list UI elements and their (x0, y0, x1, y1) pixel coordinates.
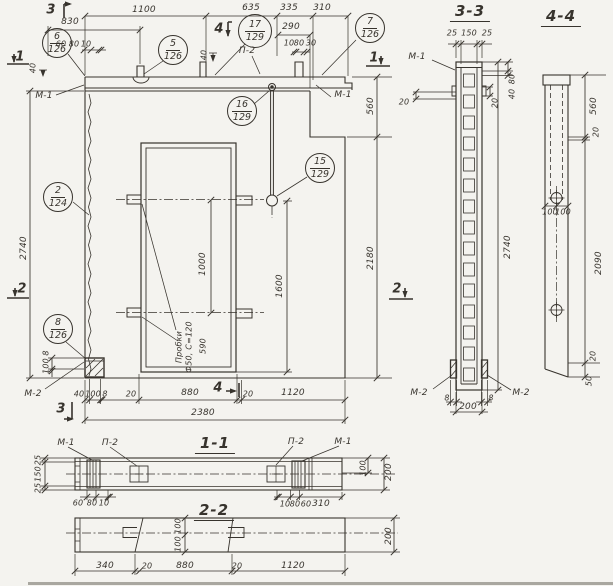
dim-2180-right: 2180 (366, 246, 376, 270)
section-1-1-title: 1-1 (195, 434, 235, 454)
s11-dim-60r: 60 (301, 500, 312, 509)
dim-20a-bottom: 20 (126, 390, 137, 399)
callout-sheet: 129 (309, 169, 331, 180)
rough-edge (88, 94, 91, 376)
dim-100-bottom: 100 (85, 390, 101, 399)
s44-dim-20b: 20 (589, 351, 598, 362)
s33-dim-40: 40 (508, 89, 517, 100)
callout-17-129: 17 129 (238, 14, 272, 48)
dim-560-right: 560 (366, 97, 376, 115)
callout-sheet: 126 (47, 330, 69, 341)
dim-2740-left: 2740 (19, 236, 29, 260)
cut-marker-4-bottom: 4 (213, 381, 222, 396)
cut-marker-1-right: 1 (369, 51, 378, 66)
s22-dim-100a: 100 (174, 518, 183, 534)
section-2-2-structure (66, 518, 398, 552)
main-panel-outline (85, 62, 352, 378)
dim-40-bottom: 40 (74, 390, 85, 399)
dim-830: 830 (61, 17, 79, 27)
label-p2-top: П-2 (239, 46, 255, 56)
dim-880-bottom: 880 (181, 388, 199, 398)
callout-7-126: 7 126 (355, 13, 385, 43)
s11-dim-150: 150 (34, 466, 43, 482)
cut-marker-3-top: 3 (46, 3, 55, 18)
callout-number: 2 (51, 185, 65, 197)
plug-note-line1: Пробки (174, 321, 184, 373)
section-3-3-title: 3-3 (450, 2, 490, 22)
callout-number: 17 (245, 19, 265, 31)
dim-20b-bottom: 20 (243, 390, 254, 399)
m2-plate (85, 358, 104, 377)
dim-10b: 10 (284, 39, 295, 48)
s22-dim-880: 880 (176, 561, 194, 571)
section-markers (7, 4, 413, 419)
s33-dim-25a: 25 (447, 29, 458, 38)
s33-label-m2l: М-2 (410, 388, 427, 398)
s22-dim-200: 200 (384, 527, 394, 545)
cut-marker-2-right: 2 (392, 282, 401, 297)
dim-1100: 1100 (132, 5, 156, 15)
s22-dim-100b: 100 (174, 536, 183, 552)
drawing-sheet: 6 126 5 126 17 129 7 126 16 129 15 129 2… (0, 0, 613, 586)
callout-16-129: 16 129 (227, 96, 257, 126)
dim-2380-total: 2380 (191, 408, 215, 418)
hinge-rod (267, 84, 278, 207)
section-4-4-title: 4-4 (541, 7, 581, 27)
s11-label-m1r: М-1 (334, 437, 351, 447)
dim-30: 30 (306, 39, 317, 48)
s33-label-m2r: М-2 (512, 388, 529, 398)
callout-5-126: 5 126 (158, 35, 188, 65)
s11-dim-25a: 25 (34, 455, 43, 466)
label-m2-bottom: М-2 (24, 389, 41, 399)
s44-dim-50: 50 (585, 376, 594, 387)
s44-dim-20t: 20 (592, 127, 601, 138)
cut-marker-3-bottom: 3 (56, 402, 65, 417)
s22-dim-20b: 20 (232, 562, 243, 571)
dim-310: 310 (313, 3, 331, 13)
dim-40-mid: 40 (200, 50, 209, 61)
s33-dim-8l: 8 (444, 394, 449, 403)
s44-dim-560: 560 (589, 97, 599, 115)
s33-dim-2740: 2740 (503, 235, 513, 259)
s44-dim-100b: 100 (555, 208, 571, 217)
callout-number: 5 (166, 38, 180, 50)
dim-635: 635 (242, 3, 260, 13)
dim-8-bottom: 8 (102, 390, 107, 399)
callout-number: 15 (310, 156, 330, 168)
dim-10: 10 (81, 40, 92, 49)
s11-dim-100: 100 (359, 460, 368, 476)
callout-2-124: 2 124 (43, 182, 73, 212)
dim-590: 590 (199, 338, 208, 354)
dim-335: 335 (280, 3, 298, 13)
callout-sheet: 129 (231, 112, 253, 123)
section-3-3-structure (451, 62, 488, 390)
page-edge (28, 582, 613, 585)
dim-290: 290 (282, 22, 300, 32)
dim-40-left: 40 (29, 63, 38, 74)
s11-label-p2l: П-2 (102, 438, 118, 448)
dim-60: 60 (56, 40, 67, 49)
s11-dim-200: 200 (384, 463, 394, 481)
cut-marker-2-left: 2 (17, 282, 26, 297)
s33-label-m1: М-1 (408, 52, 425, 62)
s11-dim-80: 80 (87, 499, 98, 508)
s22-dim-20a: 20 (142, 562, 153, 571)
s33-dim-150: 150 (461, 29, 477, 38)
s22-dim-1120: 1120 (281, 561, 305, 571)
s33-dim-20l: 20 (399, 98, 410, 107)
s11-dim-25b: 25 (34, 483, 43, 494)
s33-dim-80: 80 (508, 74, 517, 85)
s33-dim-8r: 8 (488, 394, 493, 403)
callout-sheet: 129 (244, 32, 266, 43)
dim-100-bl: 100 (42, 358, 51, 374)
callout-number: 7 (363, 16, 377, 28)
centerlines-main (116, 200, 272, 313)
s11-label-p2r: П-2 (288, 437, 304, 447)
dim-80: 80 (69, 40, 80, 49)
s44-dim-2090: 2090 (594, 251, 604, 275)
callout-sheet: 126 (359, 29, 381, 40)
s11-dim-60: 60 (73, 499, 84, 508)
label-m1-left: М-1 (35, 91, 52, 101)
dim-1120-bottom: 1120 (281, 388, 305, 398)
s33-dim-200: 200 (459, 402, 477, 412)
dim-8-bl: 8 (42, 350, 51, 355)
leader-lines-main (45, 40, 356, 389)
dim-1000-opening: 1000 (198, 252, 208, 276)
cut-marker-4-top: 4 (214, 22, 223, 37)
s33-dim-20r: 20 (491, 98, 500, 109)
s11-label-m1l: М-1 (57, 438, 74, 448)
callout-sheet: 126 (162, 51, 184, 62)
callout-number: 16 (232, 99, 252, 111)
section-2-2-title: 2-2 (194, 501, 234, 521)
label-m1-right: М-1 (334, 90, 351, 100)
section-4-4-structure (543, 75, 570, 377)
dim-80b: 80 (294, 39, 305, 48)
section-3-3-dims (413, 40, 513, 414)
section-1-1-structure (66, 458, 396, 490)
callout-sheet: 124 (47, 198, 69, 209)
s11-dim-310: 310 (312, 499, 330, 509)
dim-1600-rod: 1600 (275, 274, 285, 298)
s11-dim-10r: 10 (280, 500, 291, 509)
callout-15-129: 15 129 (305, 153, 335, 183)
callout-number: 8 (51, 317, 65, 329)
s11-dim-10: 10 (99, 499, 110, 508)
section-4-4-dims (545, 75, 606, 377)
plug-note-line2: Ф50, С=120 (184, 321, 194, 373)
plug-note: Пробки Ф50, С=120 (174, 321, 193, 373)
cut-marker-1-left: 1 (15, 50, 24, 65)
s33-dim-25b: 25 (482, 29, 493, 38)
callout-8-126: 8 126 (43, 314, 73, 344)
s11-dim-80r: 80 (290, 500, 301, 509)
s22-dim-340: 340 (96, 561, 114, 571)
